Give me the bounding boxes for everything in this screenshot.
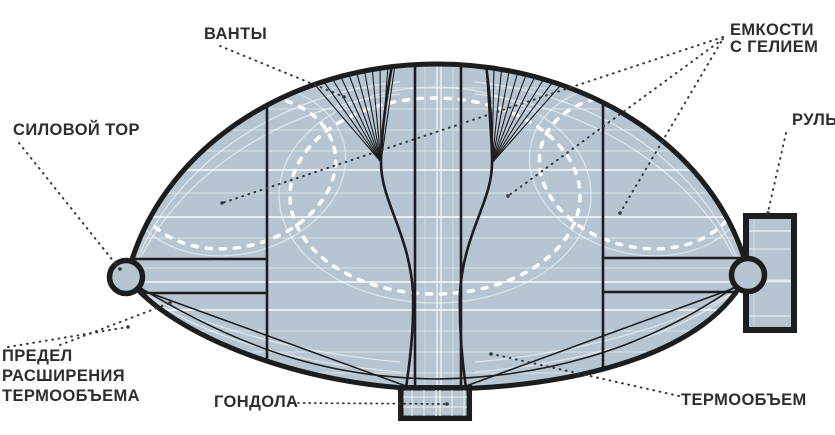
tail-torus	[732, 259, 765, 292]
label-power-torus: СИЛОВОЙ ТОР	[13, 120, 140, 140]
airship-cutaway-diagram: ВАНТЫ СИЛОВОЙ ТОР ЕМКОСТИ С ГЕЛИЕМ РУЛЬ …	[0, 0, 835, 435]
label-shrouds: ВАНТЫ	[204, 24, 267, 44]
label-rudder: РУЛЬ	[792, 110, 835, 130]
label-gondola: ГОНДОЛА	[214, 392, 298, 412]
nose-torus	[110, 261, 143, 294]
label-thermal-expansion-limit: ПРЕДЕЛ РАСШИРЕНИЯ ТЕРМООБЪЕМА	[2, 346, 140, 406]
label-helium-tanks: ЕМКОСТИ С ГЕЛИЕМ	[730, 22, 818, 55]
envelope	[106, 60, 769, 400]
label-thermal-volume: ТЕРМООБЪЕМ	[681, 390, 807, 410]
